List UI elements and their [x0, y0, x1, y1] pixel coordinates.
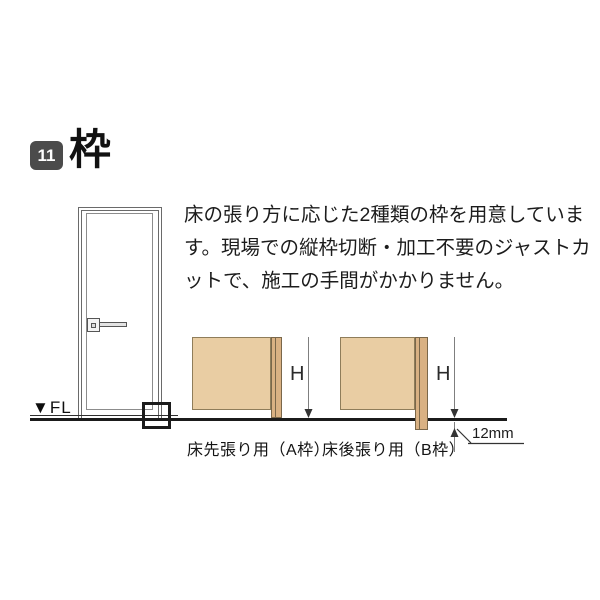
diagram-b-caption: 床後張り用（B枠）: [322, 436, 465, 460]
frame-detail-callout-box: [142, 402, 171, 429]
door-handle-lever-icon: [99, 322, 127, 327]
door-handle-spindle-icon: [91, 323, 96, 328]
page-title: 枠: [69, 129, 111, 171]
section-number-badge: 11: [30, 141, 63, 170]
diagram-a-frame-groove-line: [275, 338, 276, 417]
diagram-b-height-label: H: [436, 363, 450, 386]
diagram-a-wall-section: [192, 337, 271, 410]
diagram-b-frame-groove-line: [419, 338, 420, 429]
door-slab: [86, 213, 153, 410]
diagram-b-wall-section: [340, 337, 415, 410]
diagram-b-vertical-frame: [415, 337, 428, 430]
intro-paragraph: 床の張り方に応じた2種類の枠を用意しています。現場での縦枠切断・加工不要のジャス…: [184, 199, 594, 298]
floor-line: [30, 418, 507, 421]
diagram-a-caption: 床先張り用（A枠）: [187, 436, 330, 460]
diagram-a-height-label: H: [290, 363, 304, 386]
catalog-page: 11 枠 床の張り方に応じた2種類の枠を用意しています。現場での縦枠切断・加工不…: [0, 0, 600, 600]
diagram-a-vertical-frame: [271, 337, 282, 418]
diagram-b-offset-label: 12mm: [472, 425, 514, 442]
